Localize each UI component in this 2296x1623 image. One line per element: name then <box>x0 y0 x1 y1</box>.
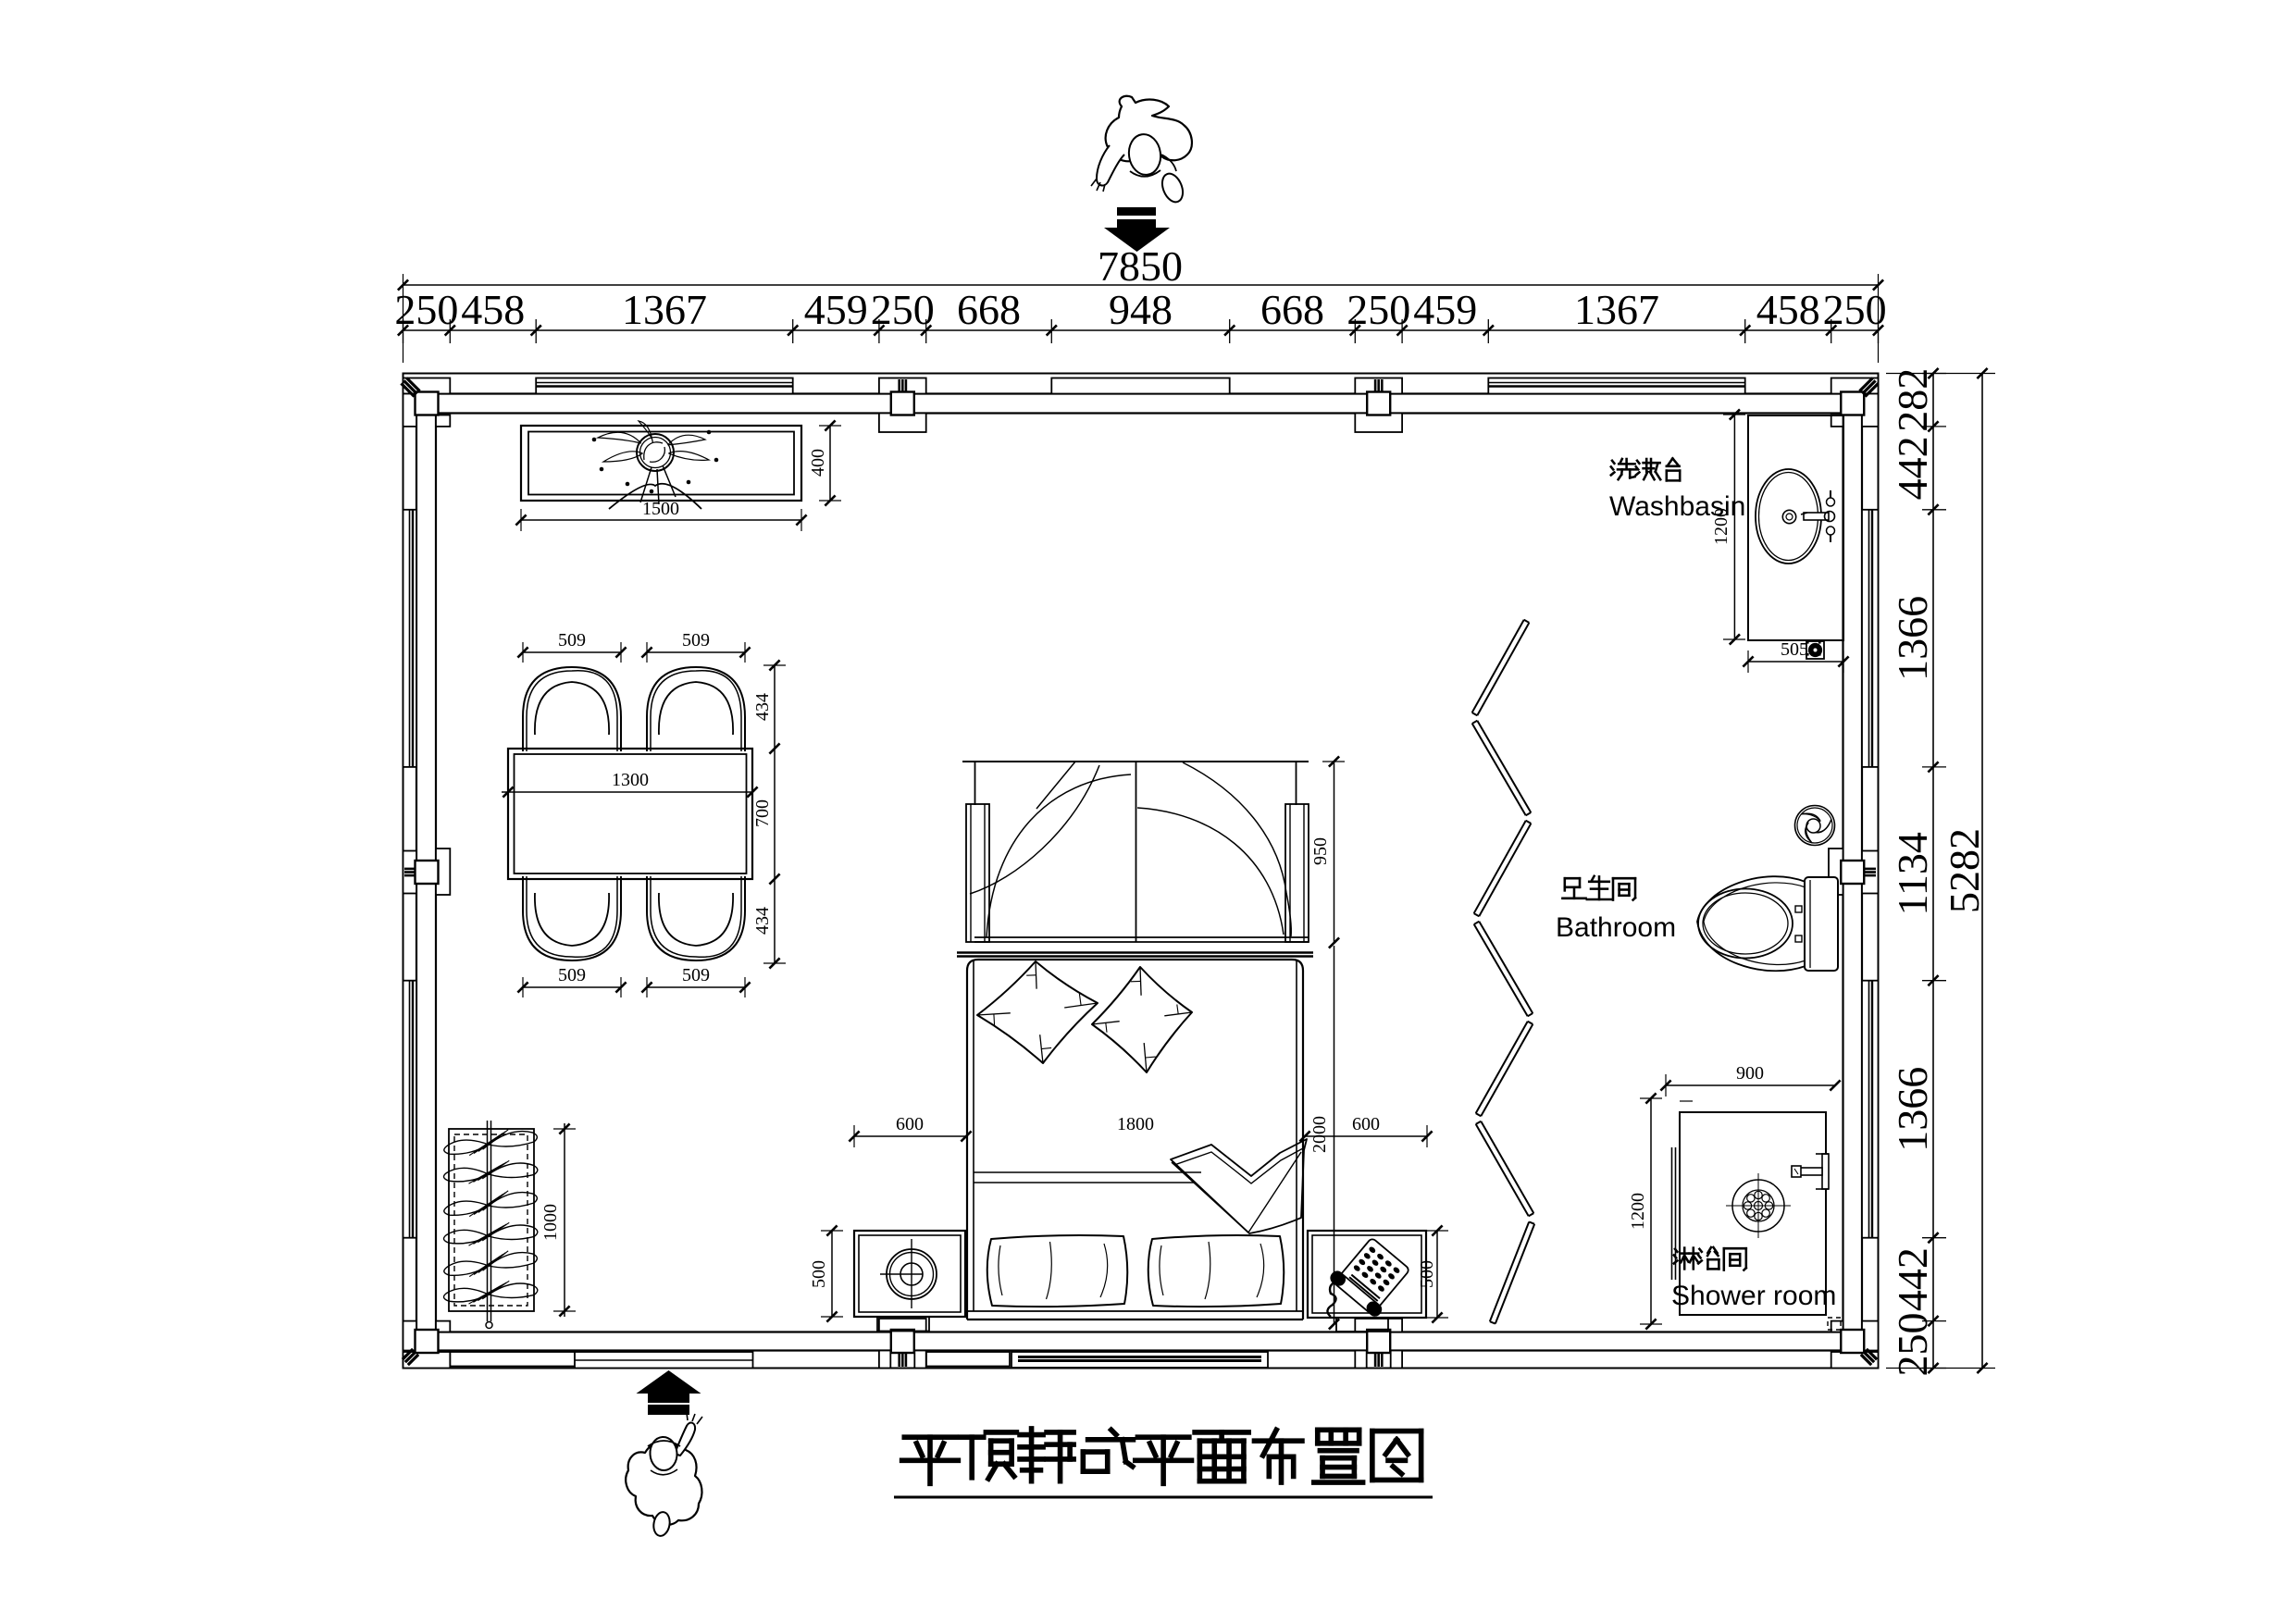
svg-text:505: 505 <box>1781 639 1808 660</box>
svg-text:1366: 1366 <box>1889 1067 1936 1152</box>
svg-text:950: 950 <box>1310 837 1331 865</box>
svg-text:458: 458 <box>461 286 525 333</box>
svg-text:250: 250 <box>394 286 458 333</box>
svg-text:Shower room: Shower room <box>1671 1281 1836 1311</box>
svg-text:Bathroom: Bathroom <box>1556 912 1676 943</box>
svg-text:Washbasin: Washbasin <box>1609 491 1745 522</box>
svg-text:509: 509 <box>558 630 586 650</box>
svg-text:1367: 1367 <box>622 286 707 333</box>
svg-text:509: 509 <box>682 630 710 650</box>
svg-text:2000: 2000 <box>1309 1116 1330 1153</box>
svg-text:600: 600 <box>896 1114 924 1134</box>
svg-text:509: 509 <box>682 965 710 985</box>
svg-text:1300: 1300 <box>612 770 649 790</box>
svg-text:600: 600 <box>1352 1114 1380 1134</box>
svg-text:5282: 5282 <box>1941 828 1988 913</box>
svg-text:434: 434 <box>752 693 773 721</box>
svg-text:700: 700 <box>752 799 773 827</box>
svg-text:434: 434 <box>752 907 773 935</box>
svg-text:1500: 1500 <box>642 499 679 519</box>
svg-text:1367: 1367 <box>1574 286 1659 333</box>
svg-text:1800: 1800 <box>1117 1114 1154 1134</box>
svg-text:900: 900 <box>1736 1063 1764 1084</box>
svg-text:458: 458 <box>1756 286 1820 333</box>
svg-text:400: 400 <box>808 449 828 477</box>
svg-text:250: 250 <box>1889 1313 1936 1377</box>
svg-text:250: 250 <box>1823 286 1887 333</box>
svg-text:668: 668 <box>1260 286 1324 333</box>
svg-text:459: 459 <box>1413 286 1477 333</box>
svg-text:459: 459 <box>804 286 868 333</box>
svg-text:509: 509 <box>558 965 586 985</box>
svg-text:442: 442 <box>1889 436 1936 500</box>
svg-text:7850: 7850 <box>1098 242 1183 290</box>
svg-text:1134: 1134 <box>1889 832 1936 915</box>
svg-text:948: 948 <box>1109 286 1173 333</box>
svg-text:1366: 1366 <box>1889 596 1936 681</box>
svg-text:1000: 1000 <box>540 1204 561 1241</box>
svg-text:282: 282 <box>1889 368 1936 432</box>
svg-text:500: 500 <box>809 1260 829 1288</box>
svg-text:668: 668 <box>957 286 1021 333</box>
svg-text:1200: 1200 <box>1628 1193 1648 1230</box>
svg-text:500: 500 <box>1417 1260 1437 1288</box>
svg-text:250: 250 <box>1347 286 1410 333</box>
svg-text:250: 250 <box>871 286 935 333</box>
svg-text:442: 442 <box>1889 1247 1936 1311</box>
